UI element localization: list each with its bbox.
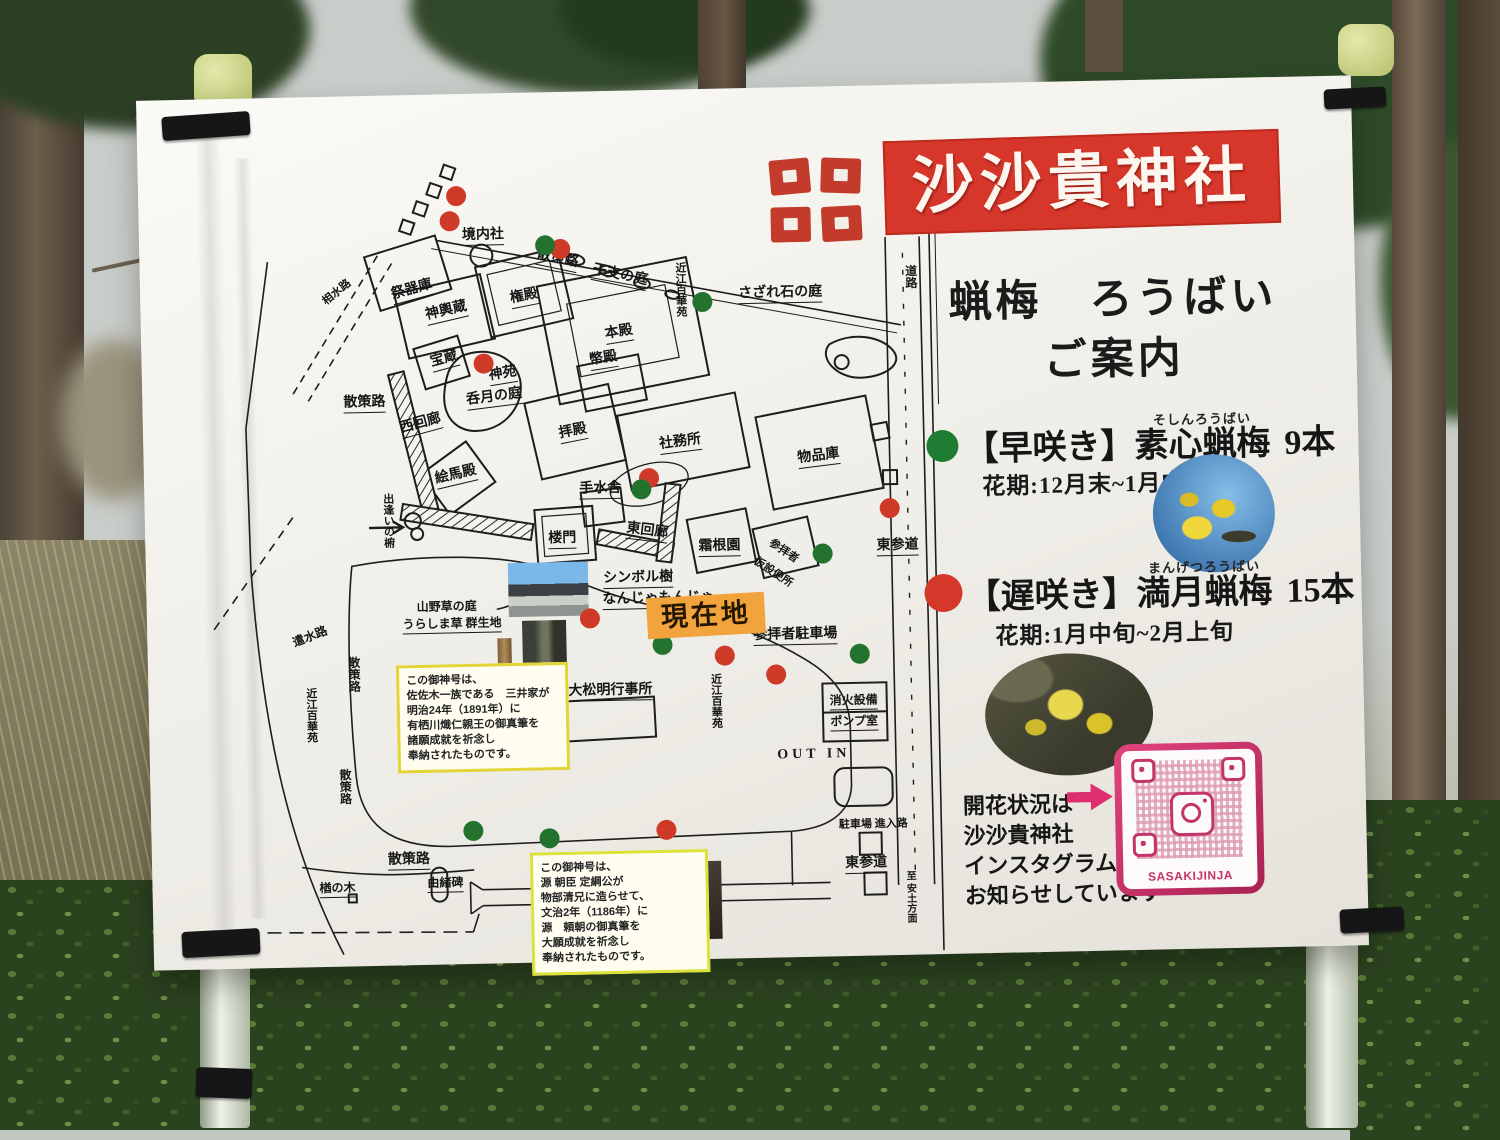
note-line: 奉納されたものです。 [542, 948, 700, 966]
late-bloom-furigana: まんげつろうばい [1148, 559, 1260, 574]
shrine-title: 沙沙貴神社 [911, 146, 1253, 219]
late-bloom-legend-dot [924, 574, 963, 613]
early-bloom-legend-dot [926, 430, 959, 463]
instagram-icon [1221, 757, 1245, 781]
note-line: 奉納されたものです。 [408, 746, 560, 764]
tree-trunk-right [1392, 0, 1446, 860]
pole-band [195, 1067, 252, 1099]
instagram-qr-code: SASAKIJINJA [1121, 749, 1258, 890]
shrine-name-note-meiji: この御神号は、佐佐木一族である 三井家が明治24年（1891年）に有栖川熾仁親王… [396, 662, 570, 774]
title-banner: 沙沙貴神社 [883, 129, 1282, 235]
guide-heading-line1: 蝋梅 ろうばい [940, 273, 1286, 328]
late-bloom-count: 15本 [1286, 573, 1355, 608]
instagram-qr-frame: SASAKIJINJA [1114, 741, 1265, 896]
late-bloom-name: 満月蝋梅 [1136, 575, 1273, 612]
board-clamp [1324, 86, 1387, 109]
pole-cap-right [1338, 24, 1394, 76]
shrine-name-note-bunji: この御神号は、源 朝臣 定綱公が物部清兄に造らせて、文治2年（1186年）に源 … [530, 849, 711, 976]
hedge [1350, 800, 1500, 1140]
late-bloom-row: 【遅咲き】 まんげつろうばい 満月蝋梅 15本 [924, 557, 1355, 616]
early-bloom-label: 【早咲き】 [964, 430, 1135, 468]
shrine-crest [769, 158, 867, 246]
tree-trunk-top [1085, 0, 1123, 72]
guide-heading-line2: ご案内 [941, 333, 1287, 388]
late-bloom-label: 【遅咲き】 [966, 578, 1137, 616]
late-bloom-period: 花期:1月中旬~2月上旬 [995, 620, 1234, 648]
crest-square [821, 204, 863, 241]
crest-square [768, 157, 811, 195]
romon-gate-photo [508, 561, 589, 617]
early-bloom-furigana: そしんろうばい [1153, 412, 1251, 427]
tree-trunk-top [698, 0, 746, 92]
sign-pole-left [200, 950, 250, 1128]
instagram-icon [1170, 791, 1215, 836]
crest-square [820, 157, 861, 193]
sign-board: 祭器庫境内社散策路干支の庭近江百華苑さざれ石の庭神輿蔵権殿本殿幣殿宝蔵神苑呑月の… [136, 75, 1369, 970]
early-bloom-count: 9本 [1284, 426, 1336, 461]
instagram-icon [1131, 759, 1155, 783]
board-clamp [1339, 906, 1404, 933]
qr-caption: SASAKIJINJA [1123, 869, 1257, 884]
sign-pole-right [1306, 940, 1358, 1128]
current-location-marker: 現在地 [646, 592, 766, 640]
instagram-icon [1133, 833, 1157, 857]
note-line: 有栖川熾仁親王の御真筆を [407, 716, 559, 734]
crest-square [770, 206, 811, 242]
early-bloom-row: 【早咲き】 そしんろうばい 素心蝋梅 9本 [926, 410, 1336, 469]
board-clamp [181, 928, 260, 958]
note-line: 佐佐木一族である 三井家が [406, 686, 558, 704]
